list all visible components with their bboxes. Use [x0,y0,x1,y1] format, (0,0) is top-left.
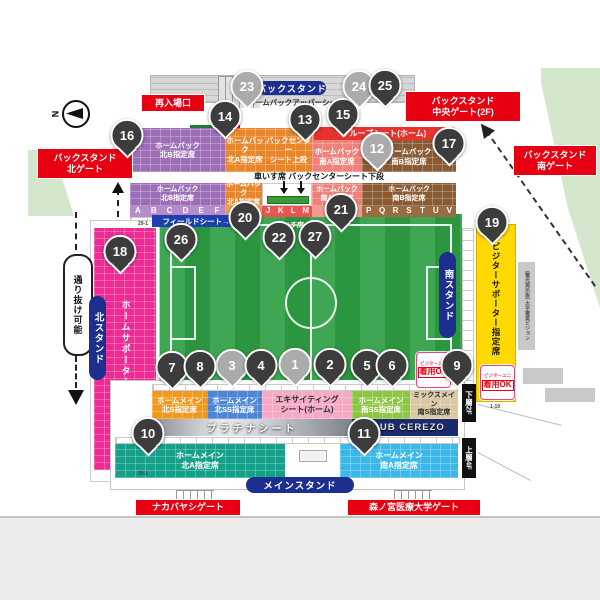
main-entrance-gap [285,444,340,478]
row-letter: U [429,206,442,217]
south-stand-pill: 南スタンド [439,252,456,338]
row-letter: A [130,206,146,217]
map-pin-22[interactable]: 22 [263,221,296,254]
map-pin-27[interactable]: 27 [299,220,332,253]
gate-reentry: 再入場口 [142,95,204,111]
row-letter: S [402,206,415,217]
north-gate-dashed [117,189,119,217]
section-homemain-southSS[interactable]: ホームメイン 南SS指定席 [352,391,410,419]
map-pin-14[interactable]: 14 [209,100,242,133]
lower-2f-tag: 下層2F [462,384,476,422]
map-pin-11[interactable]: 11 [348,417,381,450]
north-stand-pill: 北スタンド [89,296,106,380]
map-pin-20[interactable]: 20 [229,201,262,234]
stadium-seat-map: N バックスタンド ホームバックアッパーシート ホームバック 北B指定席 ホーム… [0,0,600,600]
map-pin-12[interactable]: 12 [361,132,394,165]
backstand-pill: バックスタンド [258,81,326,95]
gate-back-north: バックスタンド 北ゲート [38,149,132,178]
map-pin-19[interactable]: 19 [476,206,509,239]
wheelchair-arrow-icon [283,181,285,193]
map-pin-6[interactable]: 6 [376,349,409,382]
map-pin-13[interactable]: 13 [289,103,322,136]
wheelchair-arrow-icon [300,181,302,193]
section-homeback-northB-upper[interactable]: ホームバック 北B指定席 [130,128,225,172]
gate-morinomiya: 森ノ宮医療大学ゲート [348,500,480,515]
upper-4f-tag: 上層4F [462,438,476,478]
row-letter: Q [375,206,388,217]
row-letter: P [362,206,375,217]
gate-nakabayashi: ナカバヤシゲート [136,500,240,515]
section-platinum-seat[interactable]: プラチナシート [152,419,352,436]
map-pin-1[interactable]: 1 [279,348,312,381]
pitch-penalty-left [170,266,196,340]
gate-back-center: バックスタンド 中央ゲート(2F) [406,92,520,121]
row-number-bottom: 29-1 [138,471,148,477]
map-pin-2[interactable]: 2 [314,348,347,381]
section-mixmain-southS[interactable]: ミックスメイン 南S指定席 [410,391,458,419]
row-letter: J [262,206,275,217]
row-number-top: 29-1 [138,221,148,227]
gate-back-south: バックスタンド 南ゲート [514,146,596,175]
row-letter: M [300,206,313,217]
row-letter: T [416,206,429,217]
section-homeback-southB-lower[interactable]: ホームバック 南B指定席 [362,183,456,206]
main-seat-scale-mid [115,437,460,444]
building-block [545,388,595,402]
row-letter: V [443,206,456,217]
map-pin-8[interactable]: 8 [184,350,217,383]
section-visitor-supporter[interactable]: ビジターサポーター指定席 ビジターユニ 着用OK [476,224,516,402]
map-pin-21[interactable]: 21 [325,193,358,226]
walkway-arrow-down-icon [68,390,84,413]
compass-n-label: N [50,111,60,118]
building-block [523,368,563,384]
map-pin-25[interactable]: 25 [369,69,402,102]
map-pin-4[interactable]: 4 [245,349,278,382]
entrance-steps [299,450,327,462]
walkway-dashed-bottom [75,356,77,388]
map-pin-16[interactable]: 16 [111,119,144,152]
map-pin-23[interactable]: 23 [231,70,264,103]
park-green-area [528,68,600,308]
map-pin-26[interactable]: 26 [165,223,198,256]
compass-icon: N [62,100,90,128]
south-tick-label: 1-19 [490,404,500,410]
main-stand-pill: メインスタンド [246,477,354,493]
row-letter: L [287,206,300,217]
row-letter: R [389,206,402,217]
section-homeback-northA-upper[interactable]: ホームバック 北A指定席 [225,128,265,172]
compass-needle-icon [66,108,83,119]
row-letter: K [275,206,288,217]
outer-ground [0,516,600,600]
map-pin-10[interactable]: 10 [132,417,165,450]
visitor-uniform-ok-badge: ビジターユニ 着用OK [480,365,515,400]
walkway-dashed-top [75,212,77,250]
north-gate-arrow-icon [112,176,124,193]
wheelchair-note: 車いす席 バックセンターシート下段 [254,171,384,182]
section-exciting-seat[interactable]: エキサイティング シート(ホーム) [262,391,352,419]
structure-line [478,452,531,481]
map-pin-18[interactable]: 18 [104,235,137,268]
section-homemain-northSS[interactable]: ホームメイン 北SS指定席 [207,391,262,419]
map-pin-9[interactable]: 9 [441,349,474,382]
vision-board: (電光掲示板) 太平電業ビジョン [518,262,535,350]
section-homeback-northB-lower[interactable]: ホームバック 北B指定席 [130,183,225,206]
field-seat-label[interactable]: フィールドシート→ [152,215,240,227]
map-pin-17[interactable]: 17 [433,127,466,160]
section-homemain-northS[interactable]: ホームメイン 北S指定席 [152,391,207,419]
